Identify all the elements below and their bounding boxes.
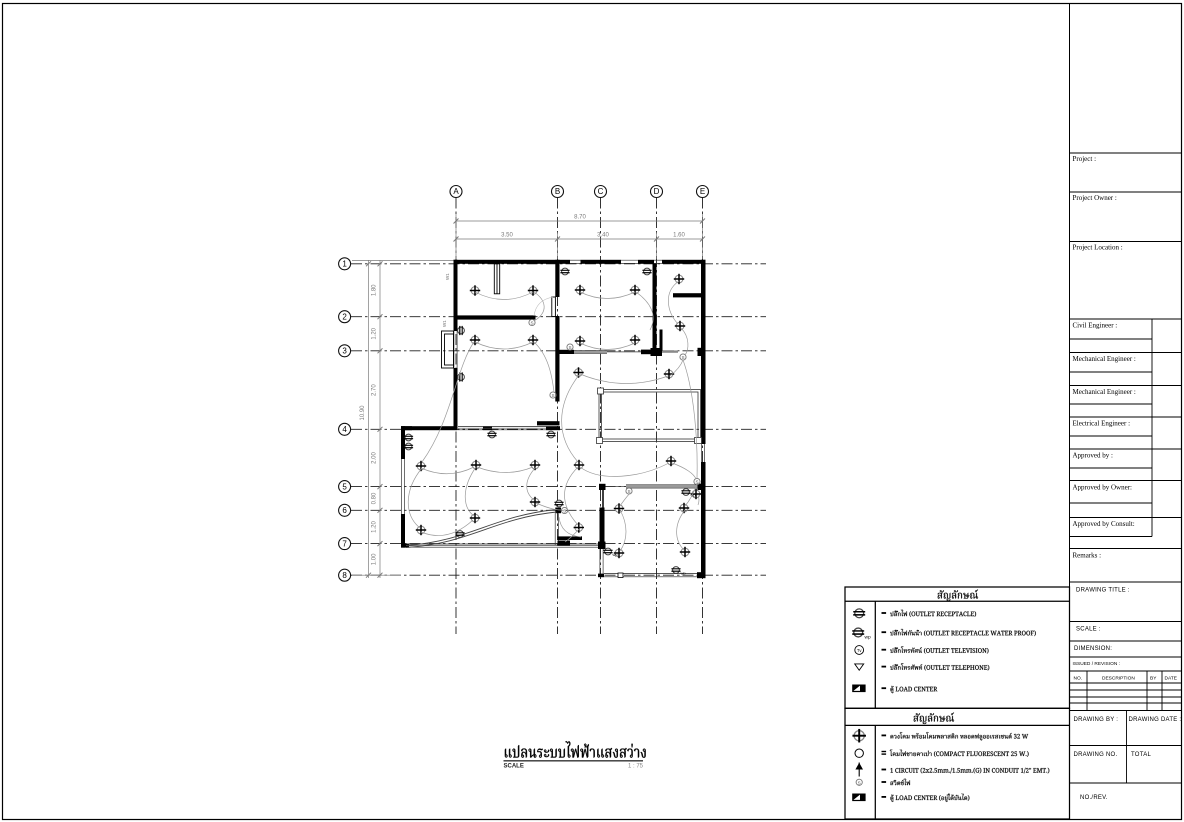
svg-text:E: E	[700, 187, 705, 196]
svg-text:0.80: 0.80	[372, 492, 378, 504]
svg-text:S: S	[858, 780, 861, 785]
svg-text:wp: wp	[865, 636, 871, 641]
svg-text:1.20: 1.20	[372, 521, 378, 533]
svg-text:1.80: 1.80	[372, 284, 378, 296]
svg-text:4: 4	[342, 425, 347, 434]
svg-text:ISSUED / REVISION :: ISSUED / REVISION :	[1073, 661, 1120, 667]
svg-text:DRAWING NO.: DRAWING NO.	[1074, 752, 1118, 758]
svg-text:W1: W1	[442, 320, 447, 327]
svg-text:Project Owner :: Project Owner :	[1073, 194, 1117, 202]
svg-text:SCALE: SCALE	[504, 763, 524, 769]
svg-text:B: B	[555, 187, 560, 196]
svg-text:Approved by Owner:: Approved by Owner:	[1073, 484, 1133, 492]
svg-text:NO./REV.: NO./REV.	[1080, 795, 1108, 801]
svg-text:5: 5	[342, 482, 347, 491]
svg-text:A: A	[453, 187, 459, 196]
svg-text:S: S	[530, 321, 533, 326]
svg-text:Mechanical Engineer :: Mechanical Engineer :	[1073, 355, 1136, 363]
svg-text:S: S	[568, 345, 571, 350]
svg-text:3.50: 3.50	[501, 233, 513, 239]
svg-text:TOTAL: TOTAL	[1131, 752, 1151, 758]
svg-text:SCALE :: SCALE :	[1076, 627, 1101, 633]
svg-text:Project Location :: Project Location :	[1073, 244, 1123, 252]
svg-text:2.70: 2.70	[372, 384, 378, 396]
svg-text:D: D	[654, 187, 660, 196]
svg-text:Approved by Consult:: Approved by Consult:	[1073, 520, 1135, 528]
svg-text:DESCRIPTION: DESCRIPTION	[1102, 676, 1135, 682]
svg-text:NO.: NO.	[1074, 676, 1083, 682]
svg-text:Project :: Project :	[1073, 155, 1097, 163]
svg-text:C: C	[598, 187, 604, 196]
svg-text:BY: BY	[1150, 676, 1157, 682]
svg-text:1.00: 1.00	[372, 553, 378, 565]
svg-text:wp: wp	[613, 552, 619, 557]
svg-text:3.40: 3.40	[597, 233, 609, 239]
svg-text:8: 8	[342, 571, 347, 580]
svg-text:DATE: DATE	[1165, 676, 1177, 682]
svg-text:Remarks :: Remarks :	[1073, 552, 1102, 560]
svg-text:Electrical Engineer :: Electrical Engineer :	[1073, 420, 1131, 428]
svg-text:DRAWING TITLE :: DRAWING TITLE :	[1076, 588, 1130, 594]
svg-text:1: 1	[342, 260, 347, 269]
svg-text:S: S	[551, 393, 554, 398]
svg-text:DIMENSION:: DIMENSION:	[1074, 646, 1112, 652]
svg-text:7: 7	[342, 539, 347, 548]
svg-text:8.70: 8.70	[574, 215, 586, 221]
svg-text:6: 6	[342, 506, 347, 515]
svg-text:DRAWING DATE :: DRAWING DATE :	[1129, 717, 1182, 723]
svg-text:S: S	[563, 509, 566, 514]
svg-text:1.60: 1.60	[673, 233, 685, 239]
svg-text:1 : 75: 1 : 75	[628, 763, 644, 769]
svg-text:wp: wp	[681, 571, 687, 576]
svg-text:2.00: 2.00	[372, 452, 378, 464]
svg-text:S: S	[695, 480, 698, 485]
svg-text:Civil Engineer :: Civil Engineer :	[1073, 322, 1118, 330]
svg-text:DRAWING BY :: DRAWING BY :	[1074, 717, 1119, 723]
svg-text:W1: W1	[445, 273, 450, 280]
svg-text:Approved by :: Approved by :	[1073, 452, 1113, 460]
svg-text:3: 3	[342, 347, 347, 356]
svg-text:2: 2	[342, 312, 347, 321]
svg-text:Mechanical Engineer :: Mechanical Engineer :	[1073, 388, 1136, 396]
svg-text:S: S	[681, 355, 684, 360]
svg-text:1.20: 1.20	[372, 327, 378, 339]
svg-text:10.90: 10.90	[360, 405, 366, 421]
